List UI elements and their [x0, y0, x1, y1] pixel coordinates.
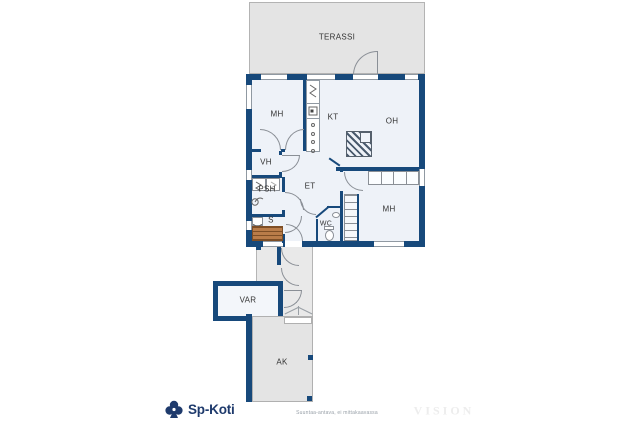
room-label-kt: KT [328, 113, 339, 122]
window-oh [405, 74, 418, 80]
room-label-sauna: S [268, 216, 274, 225]
wall-wc-left [316, 219, 318, 241]
wc-sink-icon [332, 212, 340, 218]
sauna-benches [252, 226, 283, 241]
window-mh-right [419, 169, 425, 186]
wall-et-mh2-b [340, 191, 343, 241]
fridge-icon [307, 81, 319, 104]
fireplace-hatch-notch [360, 132, 371, 143]
room-label-terassi: TERASSI [319, 33, 355, 42]
room-label-psh: PSH [258, 185, 275, 194]
window-mh-top [261, 74, 287, 80]
wall-et-mh2-a [340, 167, 343, 172]
gate-center-tick [298, 306, 299, 315]
sp-koti-logo-icon [165, 400, 183, 419]
corridor-corner-stub [256, 247, 261, 250]
room-label-oh: OH [386, 117, 399, 126]
window-mh2-bottom [374, 241, 404, 247]
sauna-stove-icon [252, 217, 263, 226]
room-label-ak: AK [276, 358, 287, 367]
window-mh-left [246, 85, 252, 109]
room-label-vh: VH [260, 158, 272, 167]
stove-burners-icon [307, 119, 319, 157]
oven-icon [307, 104, 319, 119]
kitchen-counter [306, 80, 320, 152]
room-label-var: VAR [240, 296, 257, 305]
floor-plan-canvas: TERASSI [0, 0, 640, 427]
staircase [344, 194, 358, 241]
carport-step [284, 317, 312, 324]
room-label-mh-right: MH [382, 205, 395, 214]
terrace-door-opening [353, 74, 378, 80]
room-label-mh-top: MH [270, 110, 283, 119]
brand-logo: Sp-Koti [165, 400, 235, 419]
wall-psh-right-a [282, 177, 285, 192]
carport-post-2 [307, 396, 312, 401]
watermark-text: VISION [414, 404, 475, 419]
disclaimer-text: Suuntaa-antava, ei mittakaavassa [296, 410, 378, 416]
room-label-et: ET [305, 182, 316, 191]
wall-stairs-mh2 [357, 194, 359, 241]
brand-name: Sp-Koti [188, 402, 235, 417]
shower-icon [250, 194, 264, 208]
room-label-wc: WC [320, 221, 332, 228]
toilet-icon [325, 230, 334, 241]
vh-door-leaf [282, 155, 300, 156]
wardrobe-row [368, 171, 419, 185]
var-door-leaf [284, 290, 302, 291]
terrace-door-leaf [377, 51, 378, 75]
carport-post-1 [308, 355, 313, 360]
